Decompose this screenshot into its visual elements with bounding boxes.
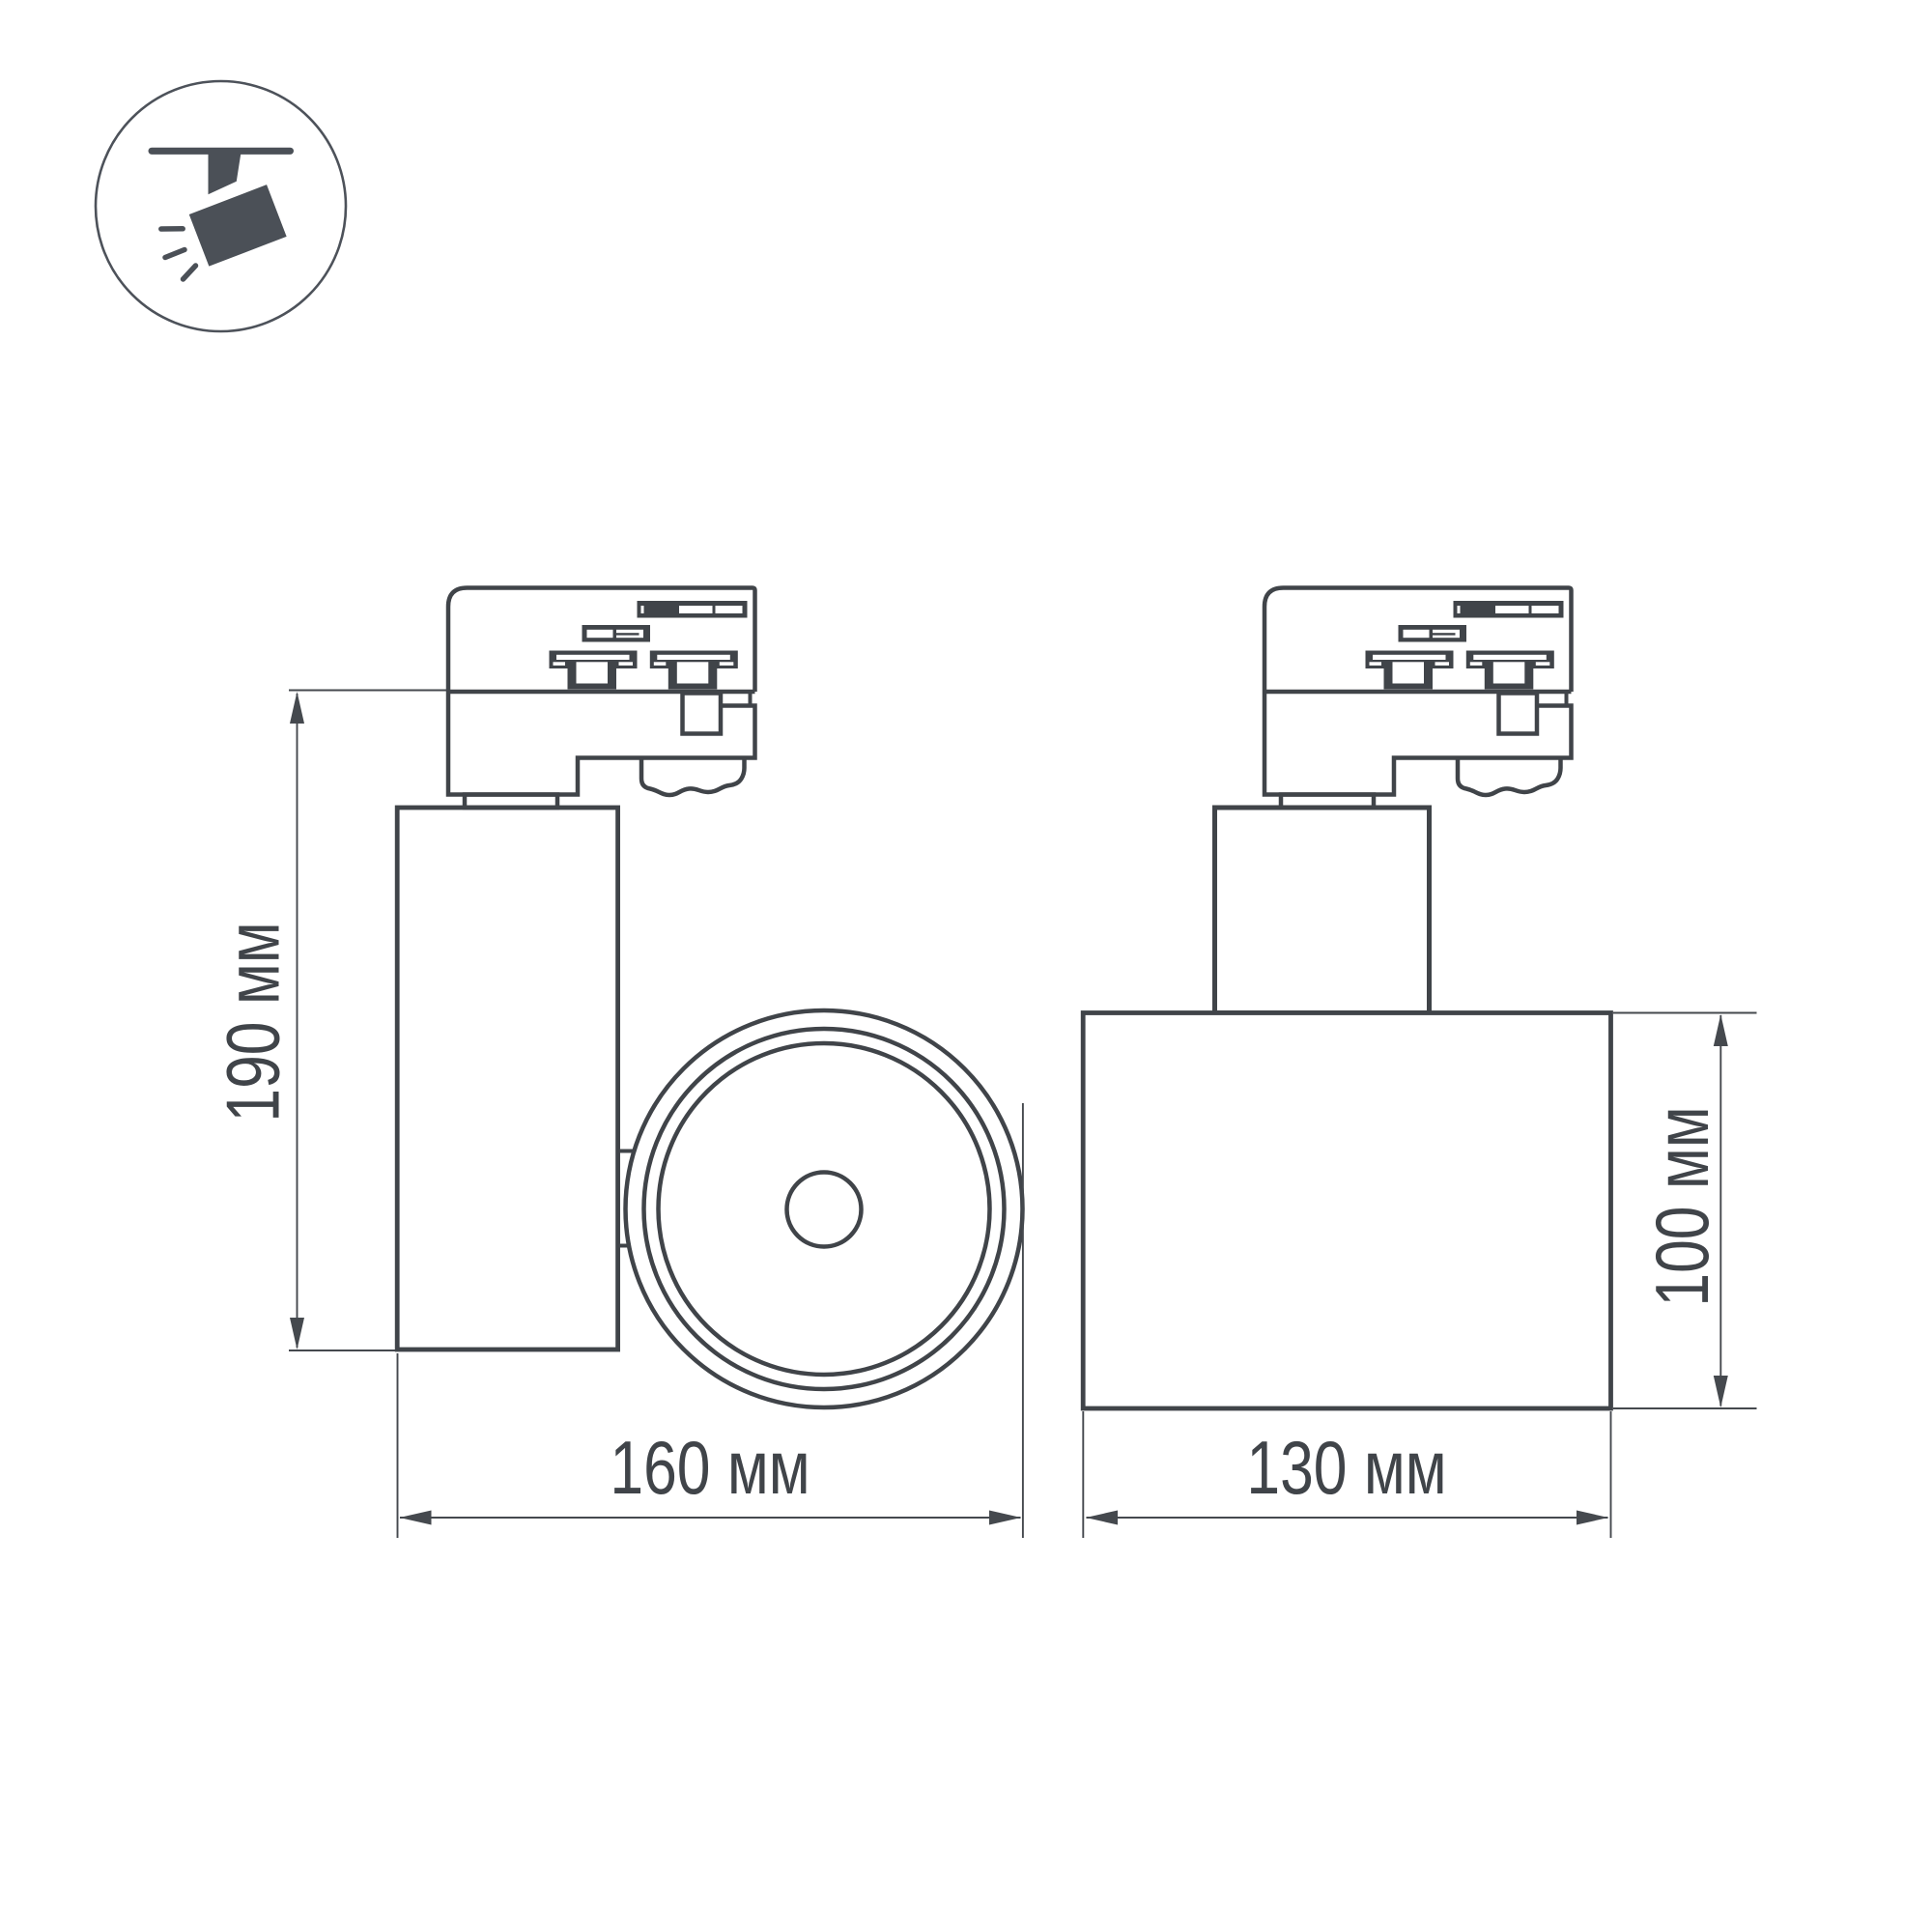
svg-text:100 мм: 100 мм [1639, 1106, 1723, 1306]
svg-text:130 мм: 130 мм [1246, 1425, 1446, 1509]
svg-text:190 мм: 190 мм [211, 922, 295, 1122]
svg-text:160 мм: 160 мм [610, 1425, 810, 1509]
